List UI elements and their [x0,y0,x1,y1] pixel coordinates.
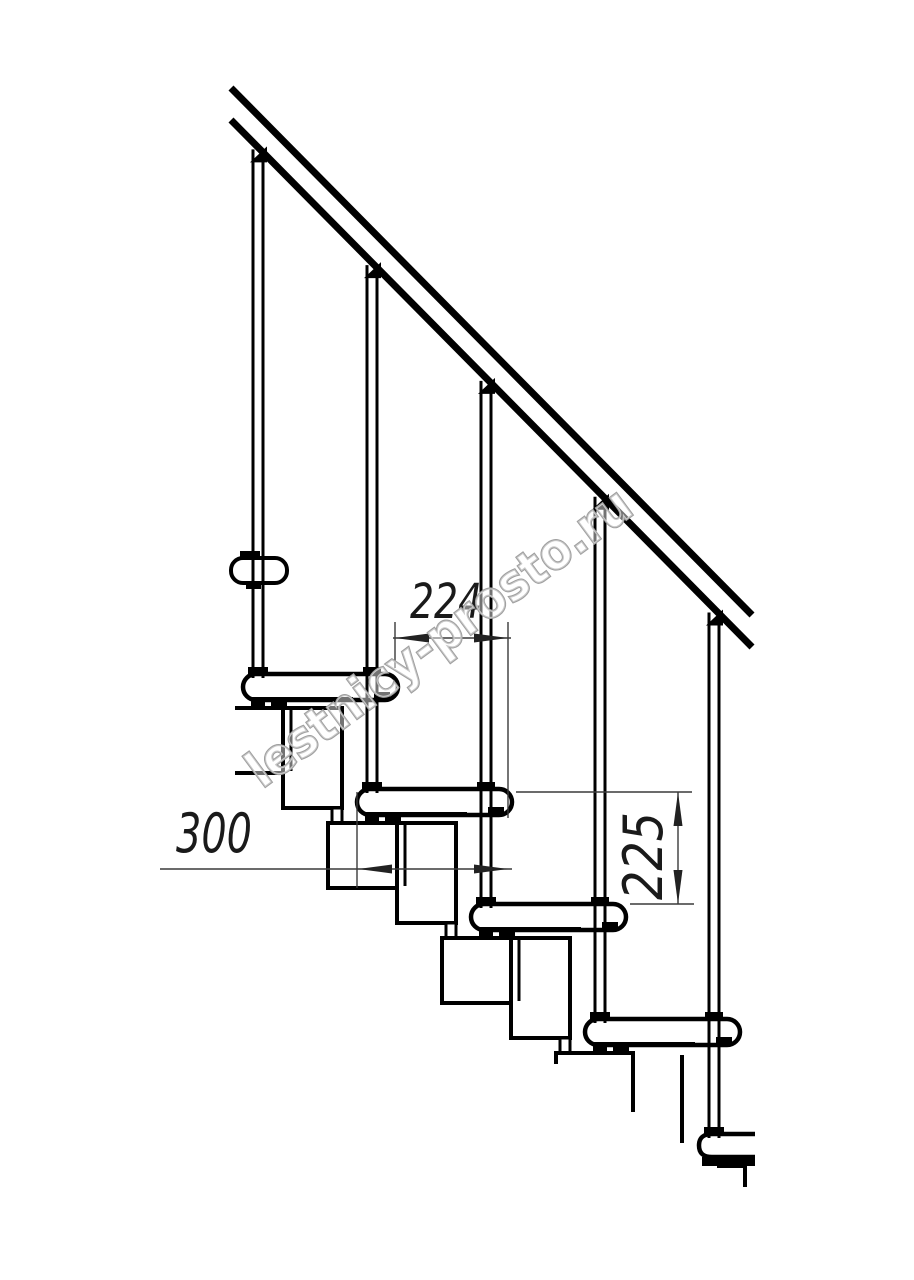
tread-foot-b-2 [385,812,401,821]
module-link-3 [560,1038,570,1053]
arrow-225-top [674,792,683,826]
tread-foot-a-2 [365,812,379,821]
baluster-base-collar-3 [476,897,496,904]
staircase-technical-drawing: 224 300 225 lestnicy-prosto.ru [0,0,914,1280]
baluster-base-collar-5 [704,1127,724,1134]
tread-5-cut-step [717,1166,745,1187]
upper-plate-collar [240,551,260,559]
tread-foot-a-4 [593,1042,607,1051]
module-link-2 [446,923,456,938]
tread-underline-4 [593,1042,695,1047]
tread-underline-3 [479,927,581,932]
drawing-canvas: 224 300 225 lestnicy-prosto.ru [0,0,914,1280]
baluster-base-collar-1 [248,667,268,674]
dim-label-step-rise: 225 [612,812,675,900]
module-box-4 [556,1053,633,1112]
tread-foot-a-3 [479,927,493,936]
tread-5 [699,1134,755,1157]
tread-foot-b-3 [499,927,515,936]
tread-underline-2 [365,812,467,817]
module-link-1 [332,808,342,823]
baluster-base-collar-4 [590,1012,610,1019]
module-box-2 [328,823,405,888]
upper-tread-plate [231,558,287,583]
dim-label-tread-depth: 300 [176,802,252,865]
tread-foot-b-4 [613,1042,629,1051]
module-box-3 [442,938,519,1003]
watermark: lestnicy-prosto.ru [235,476,643,799]
baluster-base-collar-2 [362,782,382,789]
tread-foot-b-1 [271,697,287,706]
tread-foot-a-1 [251,697,265,706]
